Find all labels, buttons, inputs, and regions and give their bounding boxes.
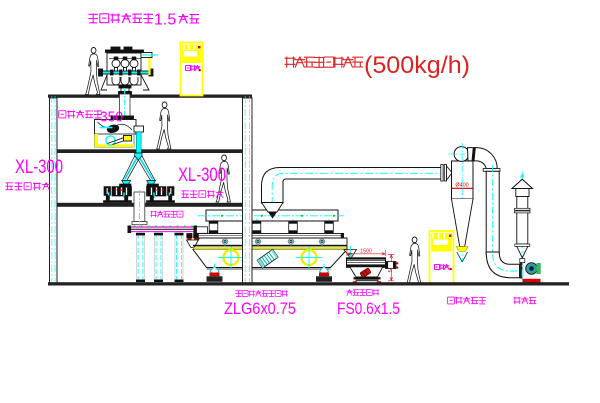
svg-text:XL-300: XL-300 <box>178 165 226 186</box>
svg-text:1.5: 1.5 <box>154 12 176 29</box>
svg-text:Ø400: Ø400 <box>455 182 468 188</box>
svg-text:FS0.6x1.5: FS0.6x1.5 <box>337 299 400 318</box>
svg-text:XL-300: XL-300 <box>15 157 63 178</box>
svg-text:ZLG6x0.75: ZLG6x0.75 <box>224 299 296 318</box>
svg-text:(500kg/h): (500kg/h) <box>364 52 470 79</box>
svg-text:350: 350 <box>100 110 123 126</box>
svg-text:1500: 1500 <box>360 249 372 255</box>
